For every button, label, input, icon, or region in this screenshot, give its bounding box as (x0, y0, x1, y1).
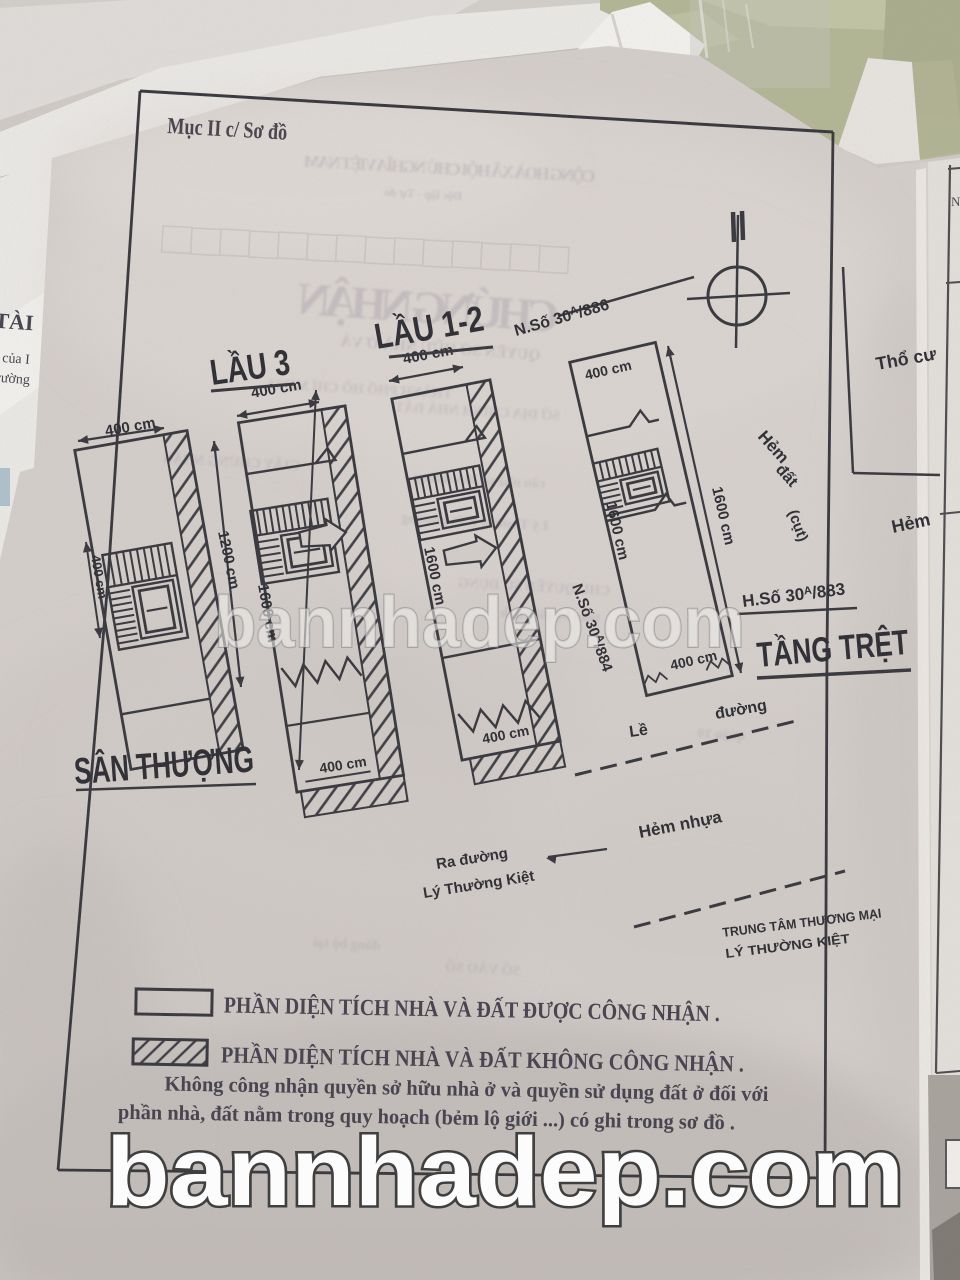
svg-text:bannhadep.com: bannhadep.com (214, 583, 745, 663)
svg-text:bannhadep.com: bannhadep.com (106, 1117, 904, 1226)
